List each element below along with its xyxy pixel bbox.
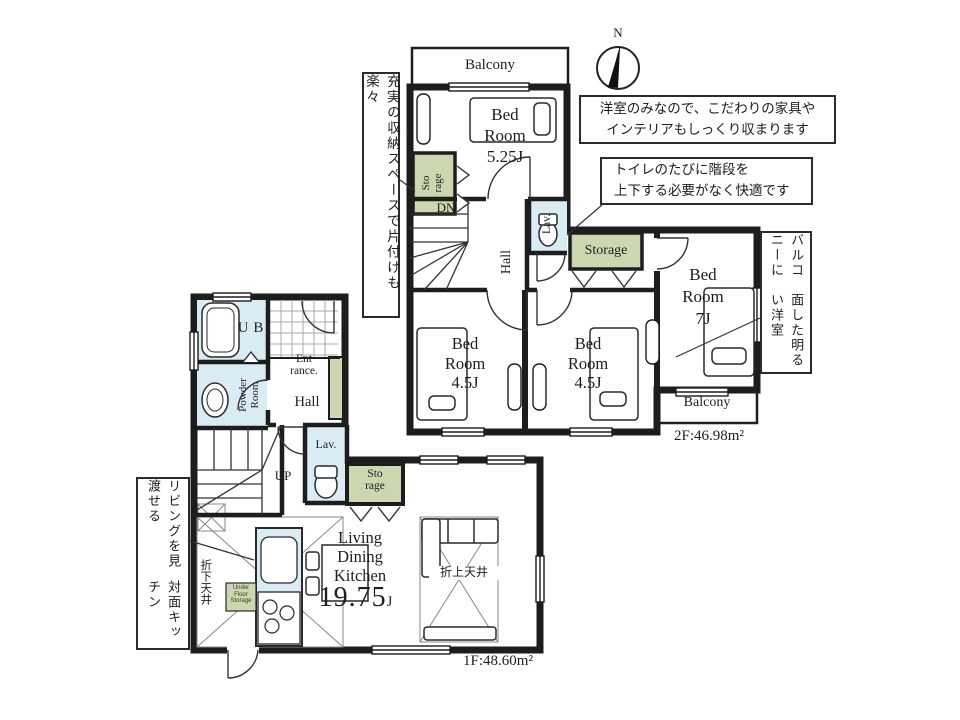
- f2-bedroom45-right-label: Bed Room 4.5J: [546, 334, 630, 393]
- f1-ub-label: UB: [234, 320, 272, 337]
- tv-board: [424, 627, 496, 640]
- f1-hall-label: Hall: [284, 394, 330, 411]
- compass-north-label: N: [610, 26, 626, 41]
- stove: [258, 592, 300, 644]
- f1-up-label: UP: [266, 469, 300, 484]
- f1-ldk-size-label: 19.75J: [296, 582, 416, 614]
- note-kitchen: リビングを見渡せる 対面キッチン: [136, 477, 190, 650]
- f2-balcony-top-label: Balcony: [450, 57, 530, 74]
- f2-bedroom45-left-label: Bed Room 4.5J: [423, 334, 507, 393]
- note-storage-space: 充実の収納スペースで片付けも楽々: [362, 72, 400, 318]
- f2-hall-label: Hall: [499, 232, 515, 292]
- f1-lowered-ceiling-label: 折下天井: [198, 542, 211, 622]
- f1-under-floor-storage-label: Under Floor Storage: [227, 585, 255, 605]
- compass-icon: [597, 47, 639, 89]
- f1-ldk-label: Living Dining Kitchen: [308, 528, 412, 585]
- f2-bedroom7-label: Bed Room 7J: [659, 264, 747, 330]
- f2-storage-closet-label: Sto rage: [420, 153, 448, 213]
- kitchen-sink: [261, 537, 297, 583]
- f2-storage-hall-label: Storage: [570, 243, 642, 259]
- note-western-room: 洋室のみなので、こだわりの家具や インテリアもしっくり収まります: [579, 95, 836, 144]
- note-toilet: トイレのたびに階段を 上下する必要がなく快適です: [600, 157, 813, 205]
- f1-powder-label: Powder Room: [237, 364, 263, 426]
- floorplan-page: N Balcony Bed Room 5.25J DN Hall Lav. St…: [0, 0, 960, 720]
- f2-area-label: 2F:46.98m²: [648, 428, 770, 445]
- f1-storage-label: Sto rage: [349, 468, 401, 492]
- f2-bedroom525-label: Bed Room 5.25J: [461, 104, 549, 167]
- note-balcony-room: バルコニーに 面した明るい洋室: [760, 231, 812, 374]
- f1-lav-label: Lav.: [307, 438, 345, 452]
- f1-entrance-label: Ent rance.: [278, 354, 330, 377]
- f2-balcony-bottom-label: Balcony: [662, 395, 752, 411]
- f1-raised-ceiling-label: 折上天井: [429, 566, 499, 580]
- f2-lav-label: Lav.: [541, 206, 555, 242]
- f1-closet-fill: [329, 357, 343, 419]
- f1-area-label: 1F:48.60m²: [438, 653, 558, 670]
